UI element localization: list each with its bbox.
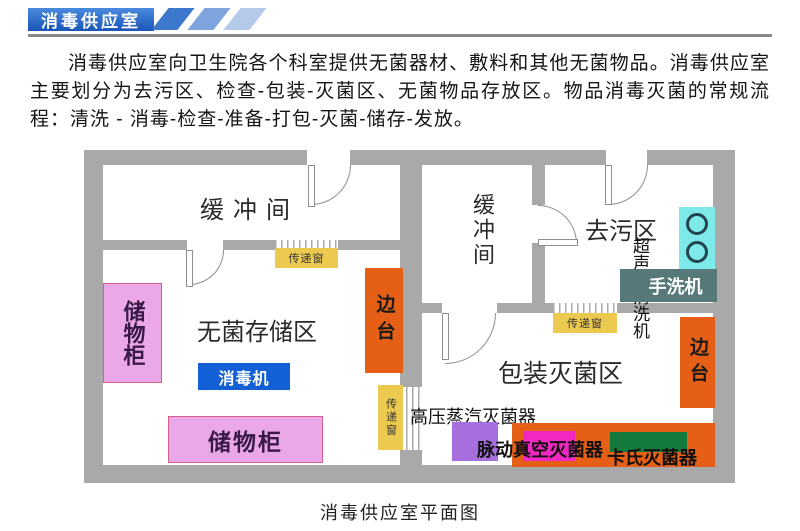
- door-leaf-decontam-top: [605, 165, 612, 205]
- wall-packaging-top-2: [497, 303, 553, 313]
- pulse-vacuum-sterilizer-label: 脉动真空灭菌器: [477, 436, 603, 462]
- wall-top-1: [84, 150, 307, 165]
- banner-stripe-icon: [187, 8, 230, 30]
- header-banner: 消毒供应室: [28, 8, 154, 31]
- sink-basin-icon: [686, 213, 708, 235]
- door-leaf-buffer-top: [308, 165, 315, 207]
- header-title: 消毒供应室: [41, 7, 141, 32]
- door-leaf-storage: [186, 250, 193, 287]
- wall-corridor-right-1: [532, 165, 545, 205]
- room-label-packaging: 包装灭菌区: [498, 354, 623, 390]
- storage-cabinet-vertical: 储物柜: [103, 283, 162, 383]
- wall-corridor-right-2: [532, 243, 545, 303]
- door-arc-buffer-top: [311, 165, 351, 205]
- wall-buffer-bottom-2: [223, 240, 275, 250]
- door-arc-decontam-top: [608, 165, 648, 205]
- pass-window-hatch-mid: [553, 303, 617, 313]
- room-label-sterile-storage: 无菌存储区: [197, 312, 317, 347]
- side-bench-right: 边台: [680, 317, 715, 408]
- door-arc-packaging: [445, 313, 496, 364]
- hand-washer-box: 手洗机: [620, 269, 717, 302]
- wall-divider-lower: [400, 450, 422, 465]
- wall-buffer-bottom-3: [338, 240, 400, 250]
- door-arc-storage: [189, 250, 224, 285]
- sink-basin-icon: [686, 241, 708, 263]
- sink-unit: [679, 207, 715, 269]
- storage-cabinet-horizontal: 储物柜: [168, 416, 323, 463]
- wall-top-2: [350, 150, 606, 165]
- banner-stripe-icon: [223, 8, 266, 30]
- pass-window-mid: 传递窗: [553, 313, 617, 333]
- door-leaf-corridor-side: [538, 239, 578, 246]
- pass-window-top: 传递窗: [275, 248, 338, 268]
- disinfector-box: 消毒机: [198, 363, 290, 390]
- banner-stripe-icon: [151, 8, 194, 30]
- pass-window-left: 传递窗: [378, 385, 403, 450]
- wall-divider-upper: [400, 165, 422, 387]
- plan-caption: 消毒供应室平面图: [0, 499, 800, 525]
- wall-buffer-bottom-1: [103, 240, 187, 250]
- cassette-sterilizer-label: 卡氏灭菌器: [607, 444, 697, 470]
- wall-right: [713, 150, 735, 483]
- door-leaf-packaging: [442, 313, 449, 360]
- wall-left: [84, 150, 103, 483]
- wall-packaging-top-1: [422, 303, 442, 313]
- room-label-buffer-left: 缓冲间: [200, 190, 299, 225]
- header-divider: [28, 34, 772, 37]
- room-label-buffer-mid: 缓冲间: [466, 193, 498, 268]
- page: 消毒供应室 消毒供应室向卫生院各个科室提供无菌器材、敷料和其他无菌物品。消毒供应…: [0, 0, 800, 531]
- side-bench-left: 边台: [365, 268, 403, 373]
- intro-paragraph: 消毒供应室向卫生院各个科室提供无菌器材、敷料和其他无菌物品。消毒供应室主要划分为…: [30, 50, 770, 134]
